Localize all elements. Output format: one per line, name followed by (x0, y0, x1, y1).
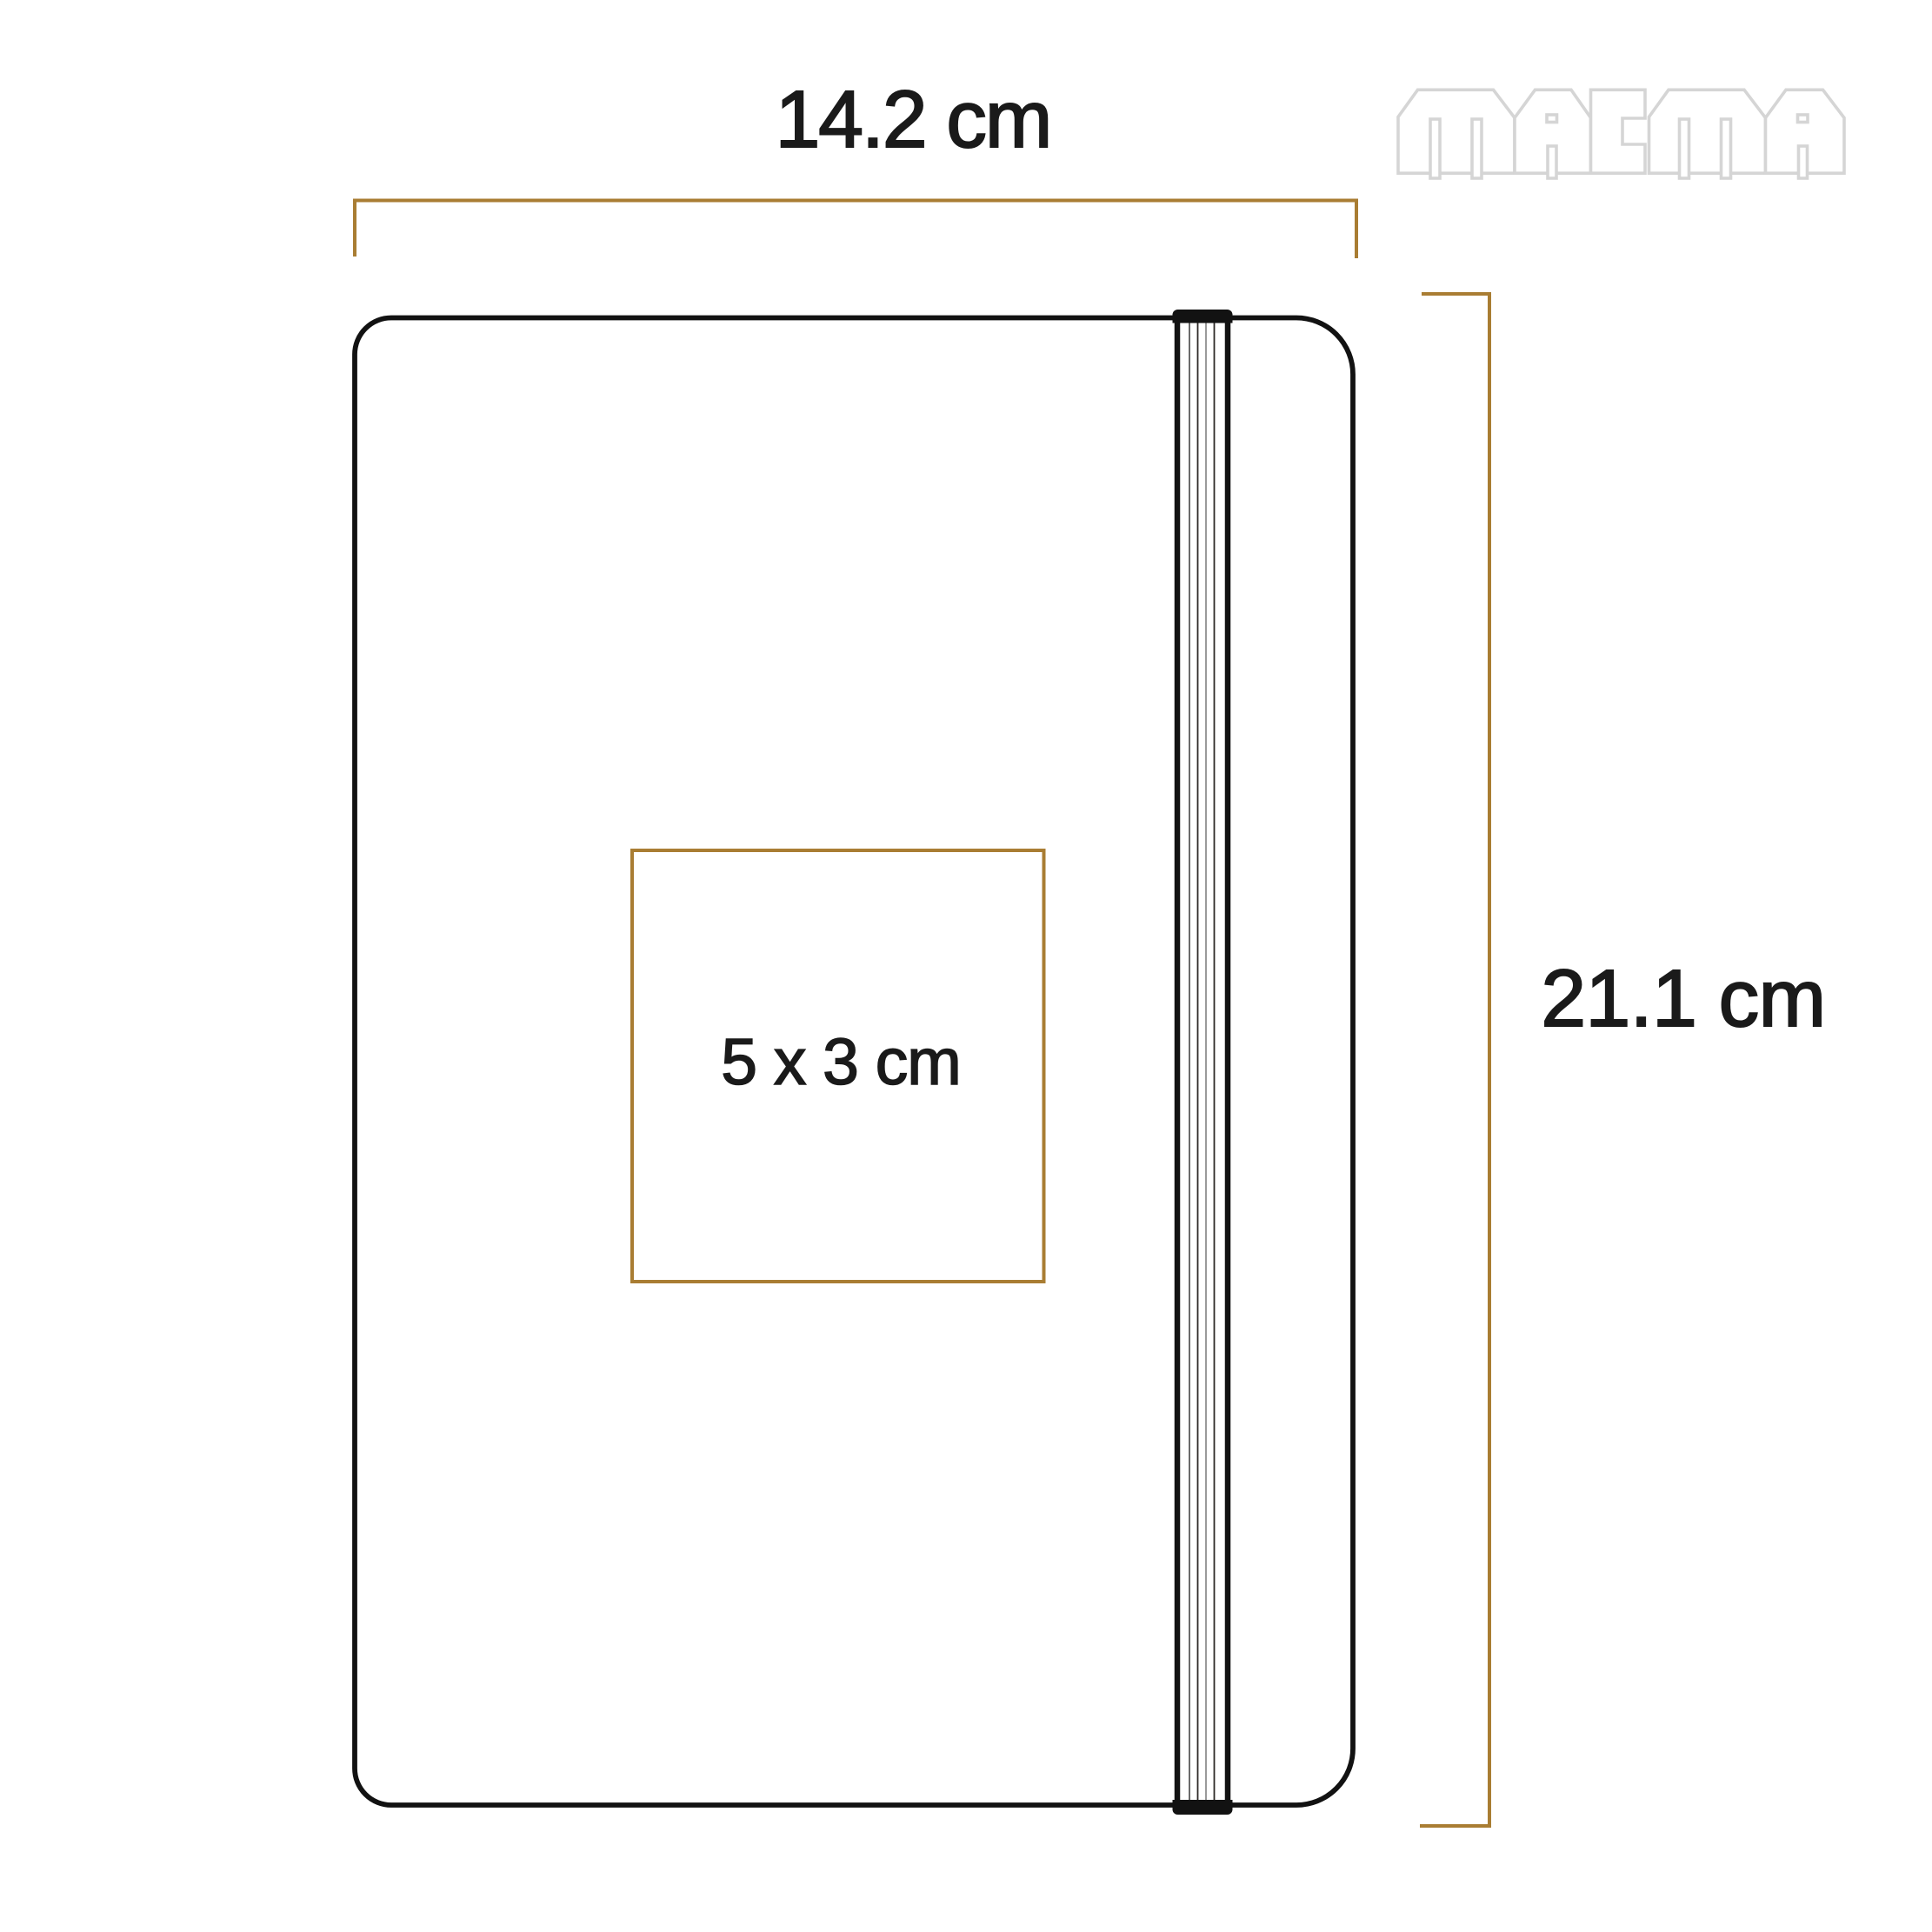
svg-text:5 x 3 cm: 5 x 3 cm (721, 1025, 960, 1098)
svg-text:21.1 cm: 21.1 cm (1541, 953, 1825, 1043)
svg-text:14.2 cm: 14.2 cm (776, 74, 1051, 164)
